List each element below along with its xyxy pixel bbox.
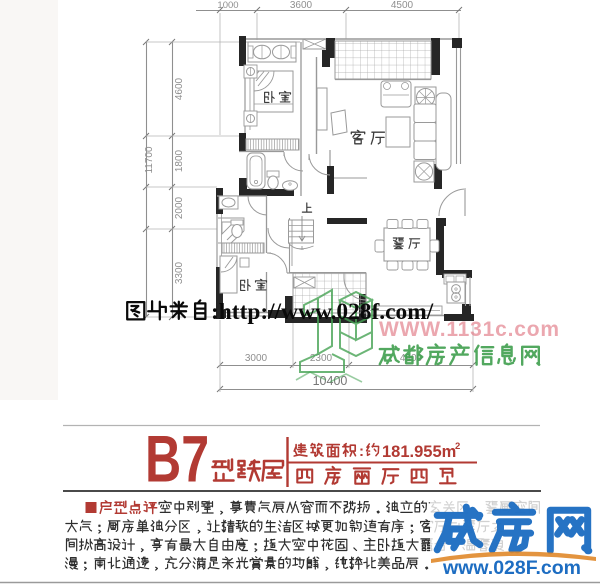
svg-text:1000: 1000 — [217, 0, 238, 11]
svg-text:2300: 2300 — [310, 353, 333, 364]
svg-text:3300: 3300 — [174, 261, 185, 284]
svg-text:www.028F.com: www.028F.com — [442, 557, 581, 579]
svg-text:4500: 4500 — [391, 0, 414, 11]
svg-text:B7: B7 — [145, 423, 209, 496]
svg-text:2: 2 — [455, 441, 460, 452]
svg-text:4600: 4600 — [174, 77, 185, 100]
svg-text:2000: 2000 — [174, 196, 185, 219]
svg-text:3600: 3600 — [290, 0, 313, 11]
svg-text:181.955m: 181.955m — [382, 443, 456, 461]
svg-text:1800: 1800 — [174, 149, 185, 172]
svg-text:3000: 3000 — [245, 353, 268, 364]
svg-text:11700: 11700 — [144, 146, 155, 174]
svg-text::: : — [359, 443, 364, 460]
svg-text::http://www.028f.com/: :http://www.028f.com/ — [211, 299, 434, 325]
